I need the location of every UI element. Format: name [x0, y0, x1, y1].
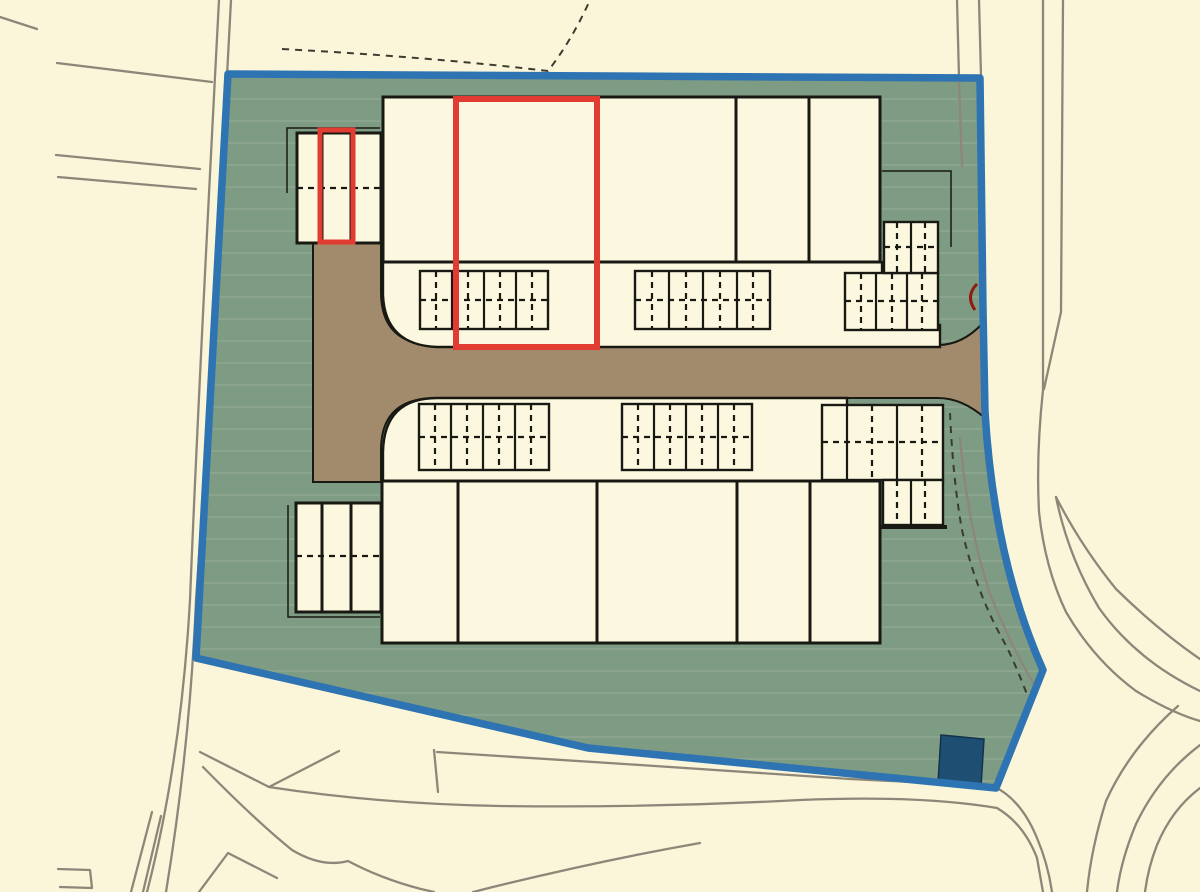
- substation-block: [938, 735, 984, 787]
- site-plan-drawing: [0, 0, 1200, 892]
- bay-group-outline: [883, 480, 943, 525]
- parking-bays-southeast-upper: [822, 405, 943, 480]
- garage-block-southwest: [288, 503, 381, 617]
- parking-bays-southeast-lower: [880, 480, 947, 527]
- parking-bays-south-1: [419, 404, 549, 470]
- garage-block-northwest: [287, 128, 381, 243]
- parking-bays-northeast-vertical: [884, 222, 938, 273]
- parking-bays-north-3: [845, 273, 938, 330]
- parking-bays-south-2: [622, 404, 752, 470]
- site-plan-canvas: [0, 0, 1200, 892]
- south-terrace-building: [382, 481, 880, 643]
- garage-outline: [296, 503, 381, 612]
- parking-bays-north-2: [635, 271, 770, 329]
- parking-bays-north-1: [420, 271, 548, 329]
